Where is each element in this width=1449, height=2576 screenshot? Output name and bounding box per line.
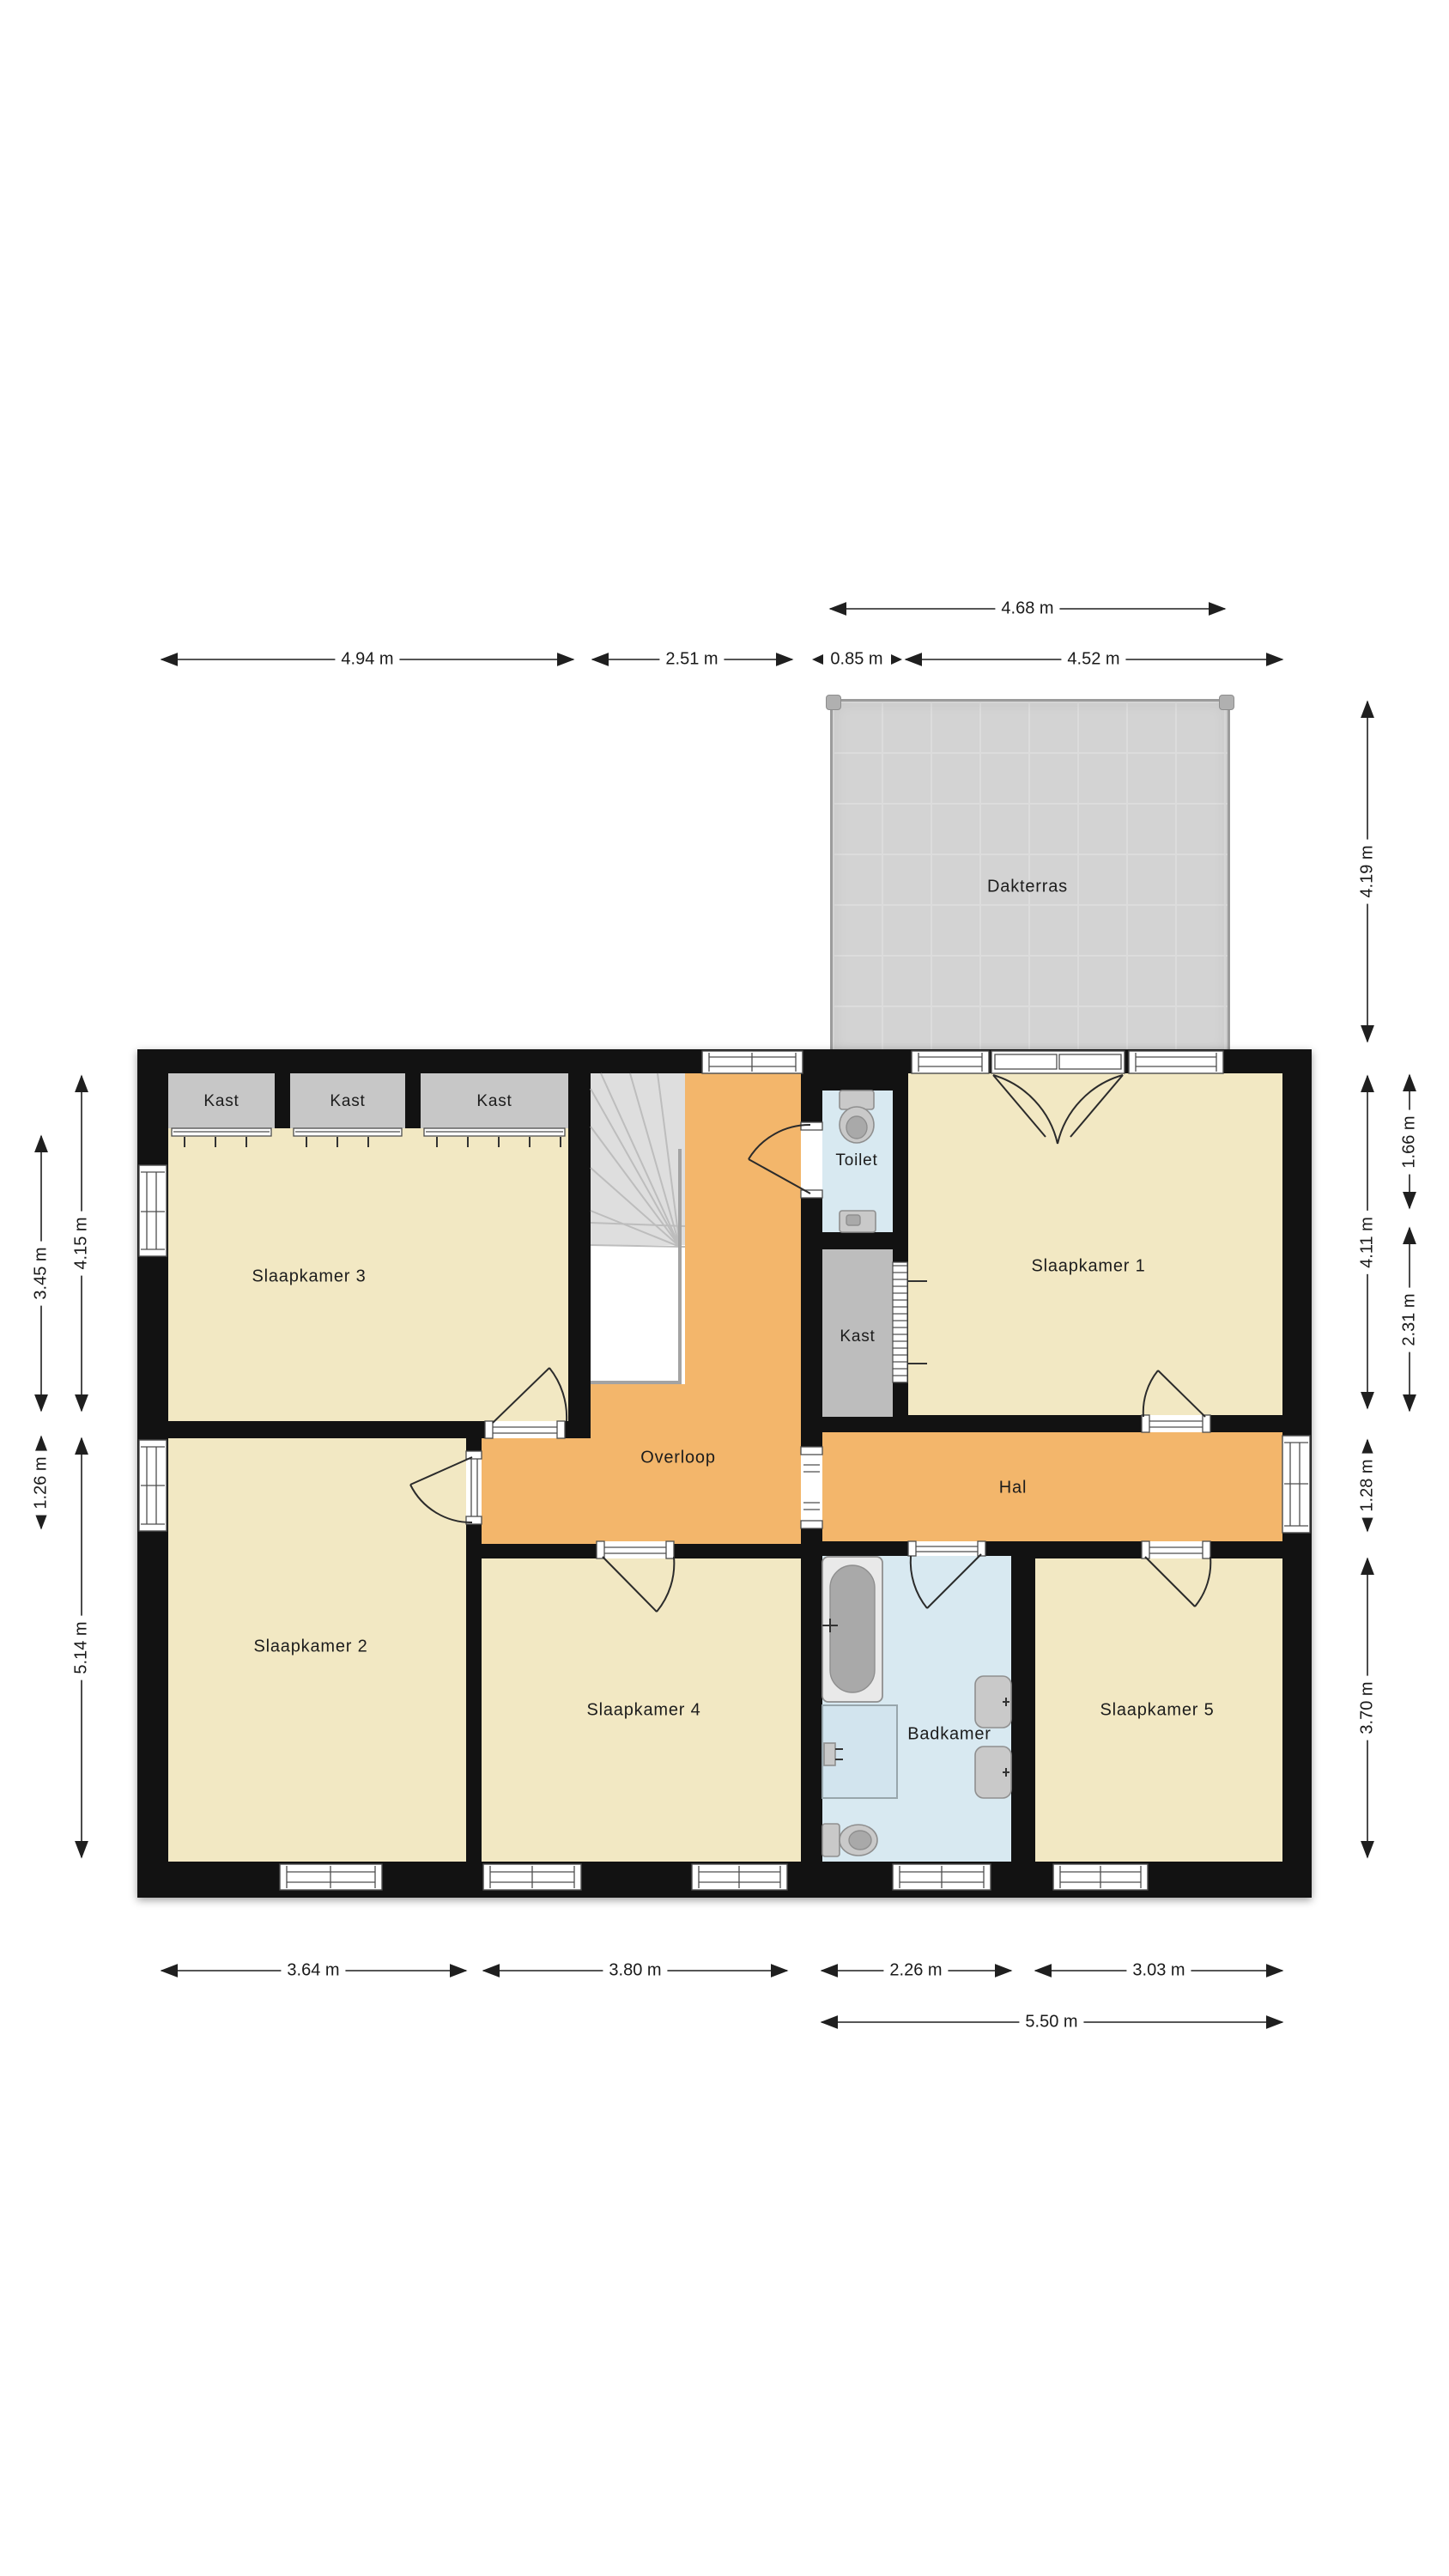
window-overloop-north bbox=[702, 1051, 803, 1073]
dim-dakterras-width: 4.68 m bbox=[995, 599, 1059, 619]
french-door-dakterras bbox=[991, 1051, 1125, 1144]
dim-slaapkamer4-width: 3.80 m bbox=[603, 1961, 667, 1981]
label-hal: Hal bbox=[999, 1479, 1027, 1498]
label-toilet: Toilet bbox=[835, 1151, 877, 1170]
window-slaapkamer2-south bbox=[280, 1864, 382, 1890]
passage-overloop-hal bbox=[801, 1447, 822, 1528]
label-dakterras: Dakterras bbox=[987, 878, 1068, 897]
door-slaapkamer-2 bbox=[410, 1451, 482, 1524]
closet-front-kast-2 bbox=[294, 1128, 402, 1142]
dim-window-segment-height: 1.26 m bbox=[32, 1450, 52, 1515]
dimension-lines bbox=[41, 609, 1410, 2022]
dim-slaapkamer2-width: 3.64 m bbox=[281, 1961, 345, 1981]
dim-dakterras-height: 4.19 m bbox=[1358, 839, 1378, 903]
closet-front-kast-3 bbox=[424, 1128, 565, 1142]
toilet-icon bbox=[840, 1091, 874, 1143]
dim-west-wing-width: 4.94 m bbox=[335, 650, 399, 670]
dim-slaapkamer1-width: 4.52 m bbox=[1061, 650, 1125, 670]
toilet-bathroom-icon bbox=[822, 1824, 877, 1856]
dim-slaapkamer2-height: 5.14 m bbox=[72, 1615, 92, 1680]
label-kast-middle: Kast bbox=[840, 1327, 875, 1346]
window-slaapkamer1-north-left bbox=[912, 1051, 989, 1073]
door-slaapkamer-4 bbox=[597, 1541, 674, 1612]
label-badkamer: Badkamer bbox=[907, 1725, 991, 1745]
door-slaapkamer-5 bbox=[1142, 1541, 1210, 1607]
window-slaapkamer1-north-right bbox=[1129, 1051, 1223, 1073]
kast-middle-louver-door bbox=[893, 1262, 927, 1382]
toilet-sink-icon bbox=[840, 1211, 876, 1232]
window-slaapkamer3-west bbox=[139, 1165, 167, 1256]
label-overloop: Overloop bbox=[640, 1449, 716, 1468]
floor-plan: Dakterras Kast Kast Kast Slaapkamer 3 To… bbox=[0, 0, 1449, 2576]
door-toilet bbox=[749, 1122, 822, 1198]
dim-slaapkamer5-width: 3.03 m bbox=[1126, 1961, 1191, 1981]
plan-linework bbox=[0, 0, 1449, 2576]
window-hal-east bbox=[1282, 1436, 1310, 1533]
label-kast-3: Kast bbox=[476, 1092, 512, 1111]
door-slaapkamer-1 bbox=[1142, 1370, 1210, 1432]
label-slaapkamer-5: Slaapkamer 5 bbox=[1100, 1701, 1215, 1721]
dim-slaapkamer1-height: 4.11 m bbox=[1358, 1211, 1378, 1274]
dim-slaapkamer3-height: 3.45 m bbox=[32, 1241, 52, 1305]
dim-lower-segment: 2.31 m bbox=[1400, 1287, 1420, 1352]
sink-icon bbox=[975, 1747, 1011, 1798]
label-kast-2: Kast bbox=[330, 1092, 365, 1111]
label-slaapkamer-2: Slaapkamer 2 bbox=[254, 1637, 368, 1657]
window-badkamer-south bbox=[893, 1864, 991, 1890]
dim-upper-segment: 1.66 m bbox=[1400, 1109, 1420, 1174]
shower-icon bbox=[822, 1705, 897, 1798]
label-slaapkamer-1: Slaapkamer 1 bbox=[1032, 1257, 1146, 1277]
door-slaapkamer-3 bbox=[485, 1368, 567, 1438]
window-slaapkamer5-south bbox=[1053, 1864, 1148, 1890]
window-slaapkamer4-south-left bbox=[483, 1864, 581, 1890]
label-slaapkamer-3: Slaapkamer 3 bbox=[252, 1267, 367, 1287]
stairs-icon bbox=[591, 1073, 685, 1382]
label-kast-1: Kast bbox=[203, 1092, 239, 1111]
bathtub-icon bbox=[822, 1557, 882, 1702]
closet-front-kast-1 bbox=[172, 1128, 271, 1142]
dim-hal-height: 1.28 m bbox=[1358, 1453, 1378, 1517]
dim-southeast-total-width: 5.50 m bbox=[1019, 2013, 1083, 2032]
sink-icon bbox=[975, 1676, 1011, 1728]
window-slaapkamer4-south-right bbox=[692, 1864, 787, 1890]
dim-northwest-height: 4.15 m bbox=[72, 1211, 92, 1275]
label-slaapkamer-4: Slaapkamer 4 bbox=[587, 1701, 701, 1721]
dim-badkamer-width: 2.26 m bbox=[883, 1961, 948, 1981]
window-slaapkamer2-west bbox=[139, 1440, 167, 1531]
dim-south-row-height: 3.70 m bbox=[1358, 1675, 1378, 1740]
dim-stair-zone-width: 2.51 m bbox=[659, 650, 724, 670]
door-badkamer bbox=[908, 1541, 985, 1608]
dim-toilet-width: 0.85 m bbox=[824, 650, 888, 670]
